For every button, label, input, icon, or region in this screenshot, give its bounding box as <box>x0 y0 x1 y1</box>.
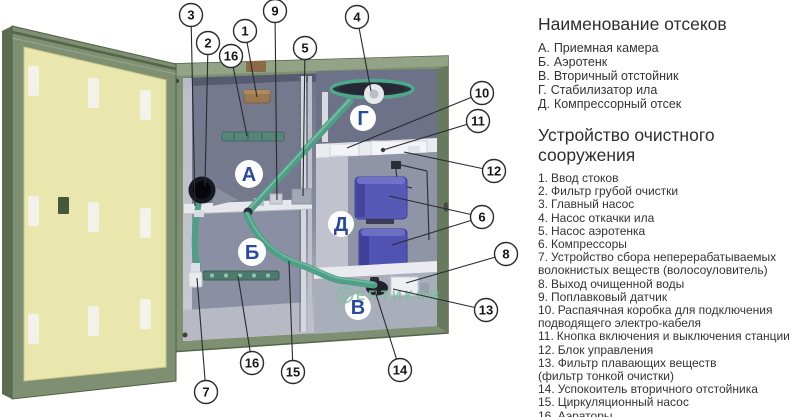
door-handle <box>58 197 69 214</box>
aerator-bar-a <box>222 132 284 141</box>
watermark-symbol: С <box>341 291 349 303</box>
item-number: 15. <box>538 395 555 409</box>
compartments-title: Наименование отсеков <box>538 14 796 34</box>
cabinet-body <box>171 56 449 352</box>
hinge-bolt <box>183 333 188 338</box>
item-label: Стабилизатор ила <box>551 83 658 97</box>
device-item: 10.Распаячная коробка для подключения по… <box>538 304 796 330</box>
device-section: Устройство очистного сооружения 1.Ввод с… <box>538 125 796 417</box>
vent-slot <box>28 314 39 344</box>
callout-number: 11 <box>471 114 485 129</box>
coarse-filter-hole <box>193 181 211 199</box>
callout-number: 14 <box>393 363 408 378</box>
item-number: 11. <box>538 329 554 343</box>
item-label: Блок управления <box>558 343 654 357</box>
vent-slot <box>88 202 99 232</box>
item-number: 10. <box>538 303 555 317</box>
compartment-item: А.Приемная камера <box>538 41 796 55</box>
station-diagram: А Б Г Д В С ЕПТИКОВ 3 <box>0 0 540 417</box>
callout-number: 9 <box>271 4 278 19</box>
callout-number: 10 <box>475 86 489 101</box>
callout-number: 2 <box>204 36 211 51</box>
item-number: 8. <box>538 277 548 291</box>
aerotank-pump <box>292 189 312 204</box>
callout-number: 4 <box>353 10 361 25</box>
compartment-item: В.Вторичный отстойник <box>538 69 796 83</box>
item-number: 3. <box>538 197 548 211</box>
inlet-top <box>246 61 266 72</box>
vent-slot <box>140 90 151 120</box>
item-label: Фильтр плавающих веществ (фильтр тонкой … <box>538 356 717 383</box>
item-label: Приемная камера <box>554 41 659 55</box>
item-label: Вторичный отстойник <box>554 69 679 83</box>
item-number: 14. <box>538 382 555 396</box>
letter-d: Д <box>334 214 348 236</box>
callout-number: 13 <box>479 303 493 318</box>
latch <box>444 202 449 212</box>
page: А Б Г Д В С ЕПТИКОВ 3 <box>0 0 800 417</box>
item-number: 5. <box>538 224 548 238</box>
legend-panel: Наименование отсеков А.Приемная камера Б… <box>538 6 796 417</box>
item-number: 2. <box>538 184 548 198</box>
item-label: Циркуляционный насос <box>558 395 689 409</box>
control-display <box>408 146 420 153</box>
item-label: Кнопка включения и выключения станции <box>557 329 790 343</box>
device-item: 16.Аэраторы <box>538 410 796 417</box>
pipe-connector <box>191 263 200 272</box>
letter-a: А <box>242 164 256 186</box>
compressor-1 <box>355 177 407 224</box>
compressor-foot <box>366 219 394 224</box>
compartments-list: А.Приемная камера Б.Аэротенк В.Вторичный… <box>538 41 796 111</box>
item-number: 9. <box>538 290 548 304</box>
item-key: Г. <box>538 83 547 97</box>
vent-slot <box>28 66 39 96</box>
letter-g: Г <box>357 108 368 130</box>
item-label: Поплавковый датчик <box>551 290 667 304</box>
callout-number: 1 <box>241 24 248 39</box>
compressor-ribs <box>360 233 369 267</box>
door-side-edge <box>2 26 12 399</box>
callout-number: 7 <box>202 385 209 400</box>
device-item: 7.Устройство сбора неперерабатываемых во… <box>538 251 796 277</box>
item-number: 7. <box>538 250 548 264</box>
compartment-b-label: Б <box>238 238 266 266</box>
compartment-g-label: Г <box>350 105 376 131</box>
item-label: Выход очищенной воды <box>551 277 684 291</box>
item-label: Ввод стоков <box>551 171 618 185</box>
callout-number: 8 <box>502 247 509 262</box>
callout-number: 16 <box>224 49 238 64</box>
cable-junction <box>391 161 401 169</box>
callout-number: 12 <box>487 164 501 179</box>
item-key: В. <box>538 69 550 83</box>
item-label: Устройство сбора неперерабатываемых воло… <box>538 250 776 277</box>
filter-bracket <box>194 210 204 217</box>
item-label: Распаячная коробка для подключения подво… <box>538 303 772 330</box>
item-label: Аэротенк <box>554 55 608 69</box>
item-number: 4. <box>538 211 548 225</box>
compartment-a-label: А <box>235 160 263 188</box>
item-number: 13. <box>538 356 555 370</box>
compartment-item: Г.Стабилизатор ила <box>538 83 796 97</box>
vent-slot <box>28 196 39 226</box>
float-sensor <box>270 194 282 204</box>
callout-number: 3 <box>187 8 194 23</box>
item-label: Компрессорный отсек <box>554 97 681 111</box>
item-label: Успокоитель вторичного отстойника <box>558 382 758 396</box>
item-label: Фильтр грубой очистки <box>551 184 678 198</box>
vent-slot <box>140 208 151 238</box>
compressor-ribs <box>356 181 365 217</box>
callout-number: 6 <box>478 210 485 225</box>
device-list: 1.Ввод стоков 2.Фильтр грубой очистки 3.… <box>538 172 796 417</box>
item-label: Компрессоры <box>551 237 627 251</box>
device-title: Устройство очистного сооружения <box>538 125 796 165</box>
callout-number: 5 <box>301 41 308 56</box>
item-label: Аэраторы <box>558 409 613 417</box>
compartment-item: Д.Компрессорный отсек <box>538 97 796 111</box>
compressor-top <box>357 177 405 184</box>
item-number: 12. <box>538 343 555 357</box>
item-key: Б. <box>538 55 550 69</box>
item-number: 16. <box>538 409 555 417</box>
vent-slot <box>88 306 99 336</box>
device-item: 13.Фильтр плавающих веществ (фильтр тонк… <box>538 357 796 383</box>
item-key: А. <box>538 41 550 55</box>
item-key: Д. <box>538 97 550 111</box>
vent-slot <box>140 299 151 329</box>
inlet-box-top <box>244 90 270 94</box>
item-label: Насос откачки ила <box>551 211 654 225</box>
callout-number: 16 <box>245 356 259 371</box>
item-label: Насос аэротенка <box>551 224 645 238</box>
junction-box <box>330 144 359 156</box>
item-number: 6. <box>538 237 548 251</box>
vent-slot <box>88 78 99 108</box>
item-number: 1. <box>538 171 548 185</box>
hair-catcher <box>189 272 202 287</box>
compartment-item: Б.Аэротенк <box>538 55 796 69</box>
cabinet-door <box>2 26 176 399</box>
item-label: Главный насос <box>551 197 634 211</box>
callout-number: 15 <box>286 365 300 380</box>
letter-b: Б <box>245 242 259 264</box>
compressor-top <box>361 229 405 236</box>
compartment-d-label: Д <box>328 211 354 237</box>
